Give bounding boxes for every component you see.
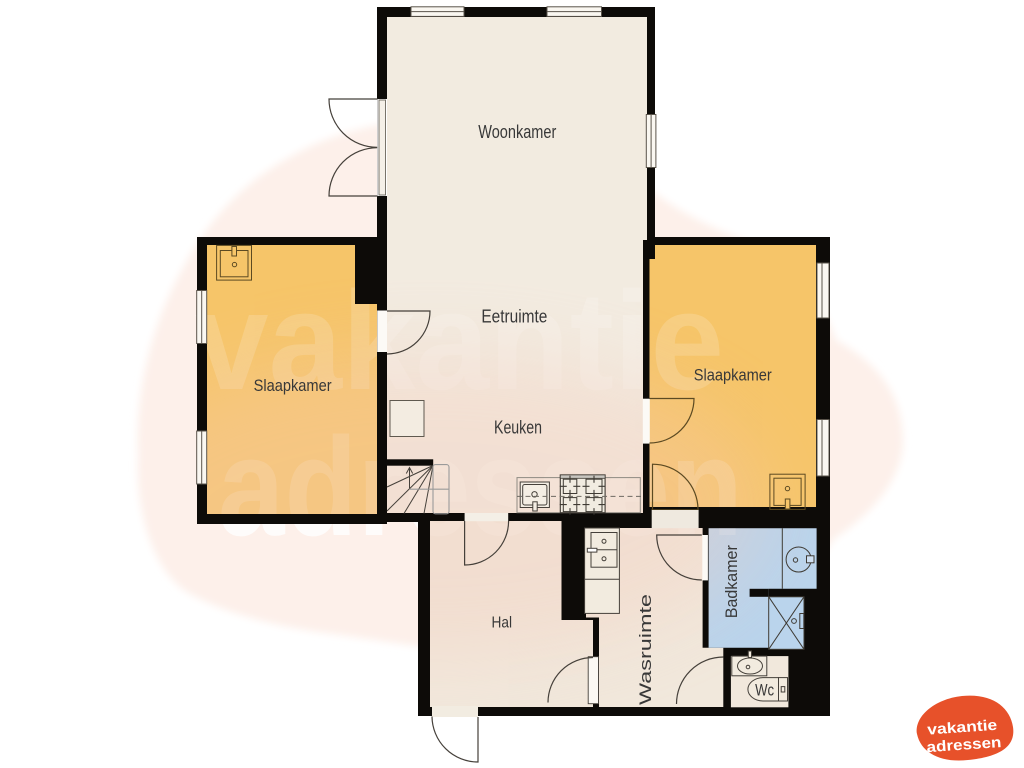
svg-text:Wc: Wc [755, 681, 774, 700]
svg-text:Badkamer: Badkamer [722, 545, 741, 618]
svg-text:Woonkamer: Woonkamer [478, 122, 556, 142]
svg-text:Keuken: Keuken [494, 418, 542, 438]
svg-text:Slaapkamer: Slaapkamer [254, 376, 332, 395]
svg-text:Slaapkamer: Slaapkamer [694, 365, 772, 384]
svg-text:Eetruimte: Eetruimte [481, 307, 547, 327]
svg-text:Hal: Hal [492, 615, 513, 632]
svg-text:Wasruimte: Wasruimte [636, 594, 655, 705]
